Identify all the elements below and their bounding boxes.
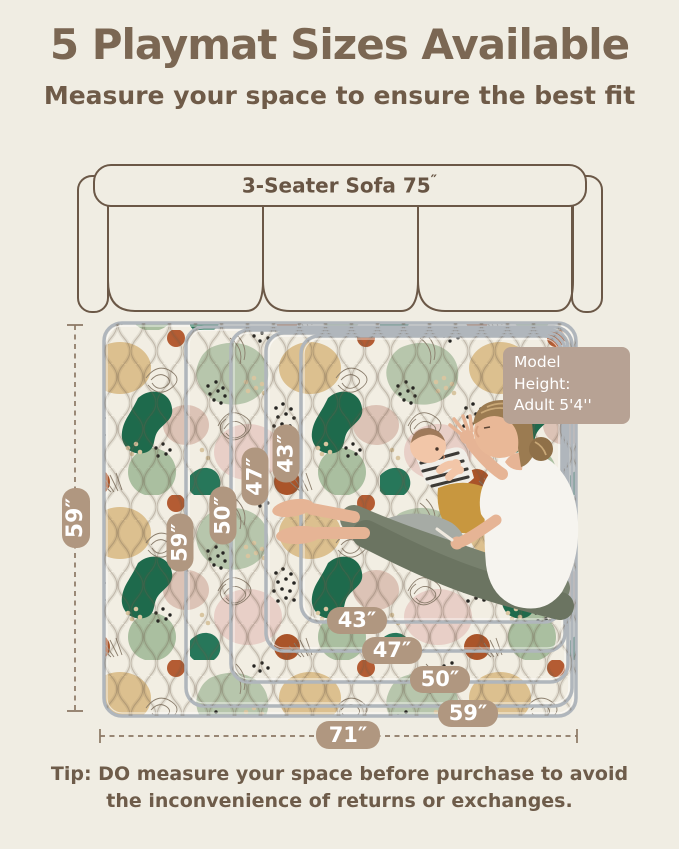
- model-height-line2: Adult 5'4'': [514, 395, 621, 417]
- mat-height-badge-50: 50″: [210, 487, 237, 545]
- mat-width-badge-43: 43″: [327, 607, 387, 634]
- overall-width-badge: 71″: [316, 721, 380, 749]
- mat-height-badge-43: 43″: [273, 425, 300, 483]
- tip-text-line2: the inconvenience of returns or exchange…: [0, 790, 679, 812]
- mat-width-badge-50: 50″: [410, 666, 470, 693]
- mat-height-badge-47: 47″: [242, 448, 269, 506]
- model-height-badge: Model Height: Adult 5'4'': [503, 347, 630, 424]
- overall-height-badge: 59″: [62, 488, 90, 548]
- sofa-label: 3-Seater Sofa 75″: [0, 173, 679, 198]
- sofa-label-text: 3-Seater Sofa 75: [242, 174, 431, 198]
- mat-width-badge-47: 47″: [362, 637, 422, 664]
- mat-width-badge-59: 59″: [438, 700, 498, 727]
- playmat-size-infographic: 5 Playmat Sizes Available Measure your s…: [0, 0, 679, 849]
- mat-height-badge-59: 59″: [167, 514, 194, 572]
- model-height-line1: Model Height:: [514, 352, 621, 395]
- sofa-label-inch-mark: ″: [431, 173, 437, 189]
- tip-text-line1: Tip: DO measure your space before purcha…: [0, 763, 679, 785]
